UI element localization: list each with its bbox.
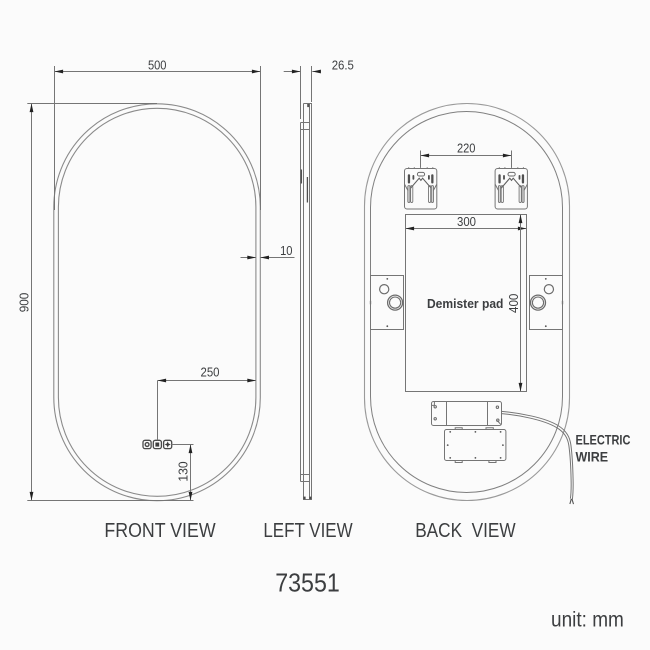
svg-text:400: 400 xyxy=(506,294,521,313)
svg-text:Demister pad: Demister pad xyxy=(427,296,504,311)
svg-text:unit: mm: unit: mm xyxy=(551,608,624,631)
svg-text:10: 10 xyxy=(280,243,292,258)
svg-text:BACK VIEW: BACK VIEW xyxy=(415,520,515,542)
svg-text:LEFT VIEW: LEFT VIEW xyxy=(263,520,352,542)
svg-text:130: 130 xyxy=(176,461,191,481)
svg-text:26.5: 26.5 xyxy=(332,57,354,72)
svg-text:73551: 73551 xyxy=(275,567,340,597)
svg-text:900: 900 xyxy=(16,293,31,313)
svg-text:WIRE: WIRE xyxy=(576,449,609,465)
svg-text:500: 500 xyxy=(148,57,167,72)
svg-text:250: 250 xyxy=(201,365,220,380)
svg-text:ELECTRIC: ELECTRIC xyxy=(576,432,631,448)
svg-text:220: 220 xyxy=(457,141,476,156)
svg-text:300: 300 xyxy=(457,214,476,229)
svg-text:FRONT VIEW: FRONT VIEW xyxy=(104,520,215,542)
